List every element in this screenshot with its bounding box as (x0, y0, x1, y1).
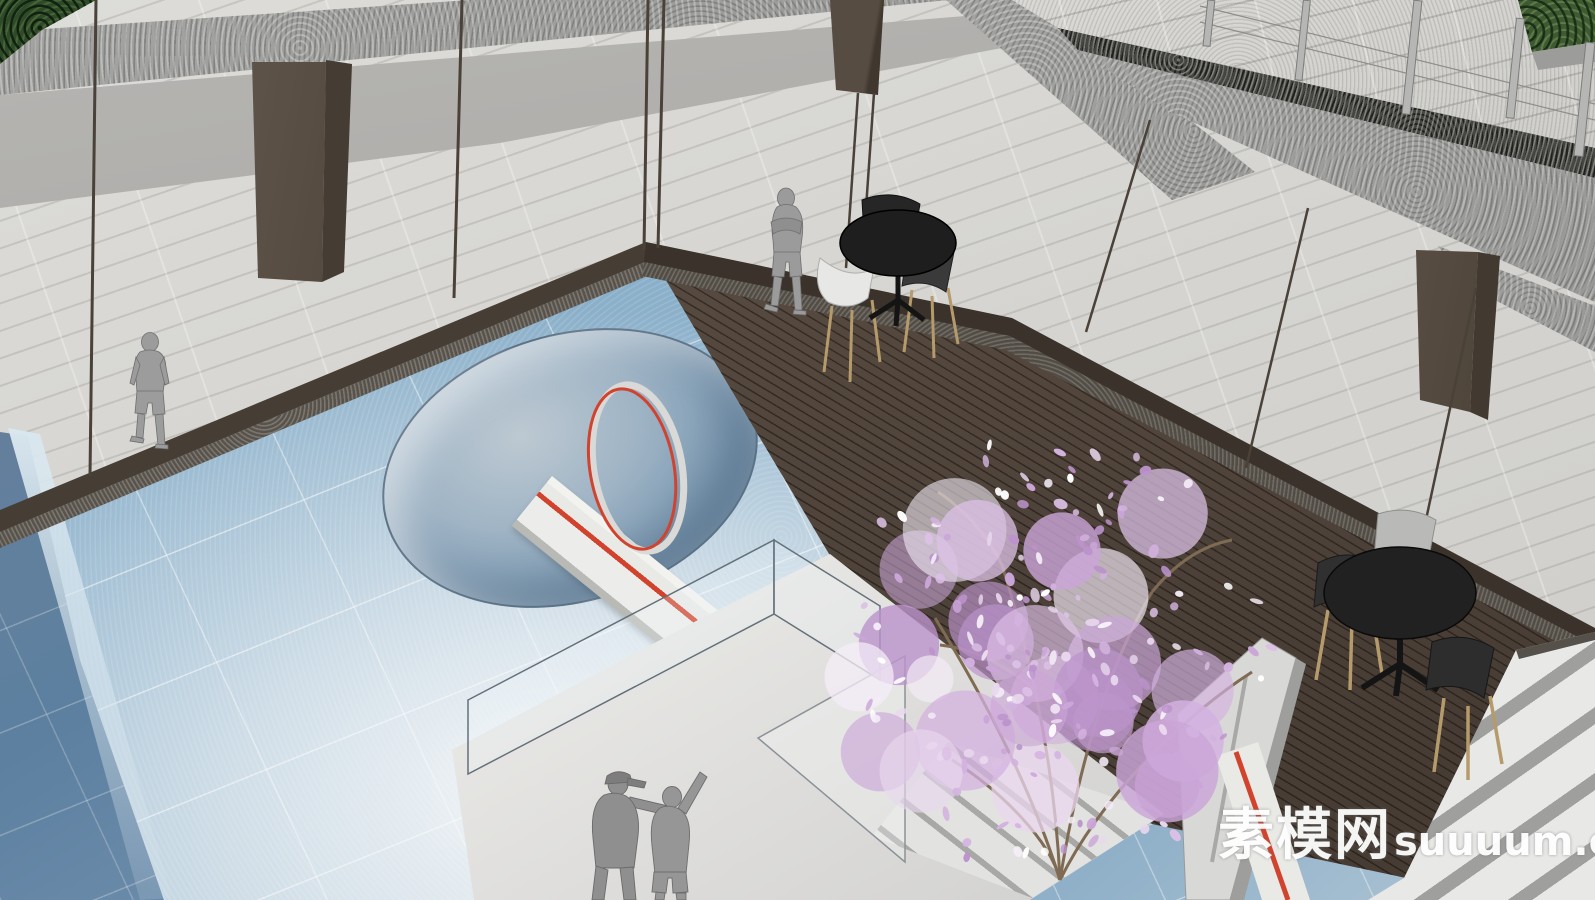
watermark: 素模网 suuuum.com (1218, 808, 1595, 864)
hanging-column-left (250, 62, 328, 284)
hanging-panel-center (828, 0, 886, 98)
watermark-latin: suuuum.com (1394, 821, 1595, 864)
render-canvas: 素模网 suuuum.com (0, 0, 1595, 900)
watermark-cjk: 素模网 (1218, 808, 1392, 864)
